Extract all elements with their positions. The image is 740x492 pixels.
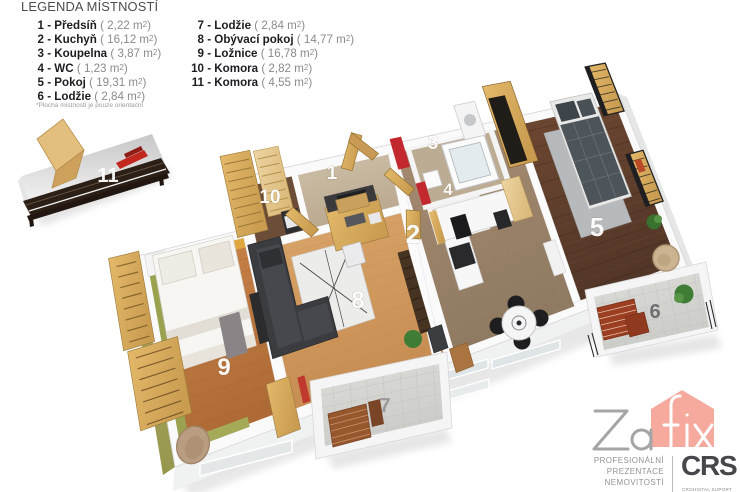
svg-text:2: 2 xyxy=(406,219,420,249)
svg-text:7: 7 xyxy=(379,395,390,417)
svg-text:6: 6 xyxy=(649,301,660,323)
svg-text:1: 1 xyxy=(327,163,338,184)
svg-text:3: 3 xyxy=(428,133,439,154)
svg-text:9: 9 xyxy=(217,354,230,381)
svg-text:4: 4 xyxy=(443,180,453,199)
svg-text:5: 5 xyxy=(590,212,604,242)
svg-text:11: 11 xyxy=(97,165,118,187)
svg-text:8: 8 xyxy=(351,287,364,314)
svg-text:10: 10 xyxy=(259,187,280,208)
